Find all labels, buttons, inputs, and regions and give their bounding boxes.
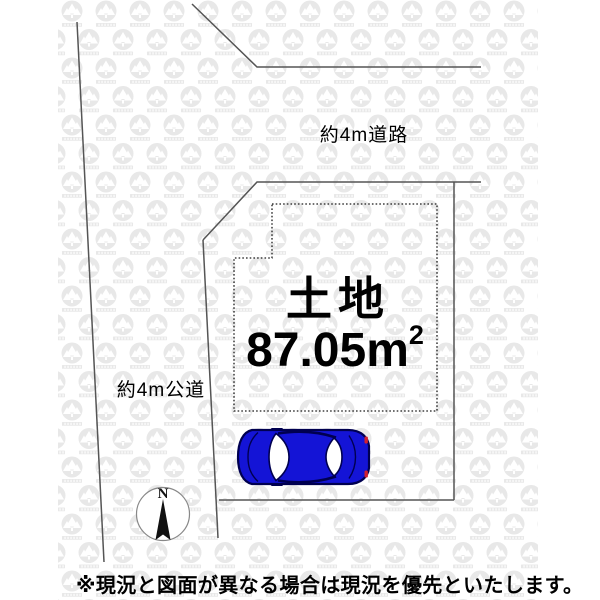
car-taillight-bottom — [365, 471, 368, 478]
top-road-label: 約4m道路 — [304, 120, 424, 147]
land-plot-diagram: N 約4m道路 約4m公道 土地 87.05m2 ※現況と図面が異なる場合は現況… — [0, 0, 600, 600]
car-body — [238, 430, 369, 484]
parcel-title: 土地 — [210, 274, 460, 324]
parcel-area-exponent: 2 — [409, 322, 424, 349]
disclaimer-footnote: ※現況と図面が異なる場合は現況を優先といたします。 — [76, 569, 583, 598]
parcel-info: 土地 87.05m2 — [210, 274, 460, 374]
parcel-area: 87.05m2 — [210, 328, 460, 374]
car-top-view-icon — [238, 429, 369, 486]
car-taillight-top — [365, 437, 368, 444]
parcel-area-unit: m — [366, 328, 409, 374]
left-road-label: 約4m公道 — [100, 375, 222, 402]
parcel-area-value: 87.05 — [246, 328, 366, 374]
